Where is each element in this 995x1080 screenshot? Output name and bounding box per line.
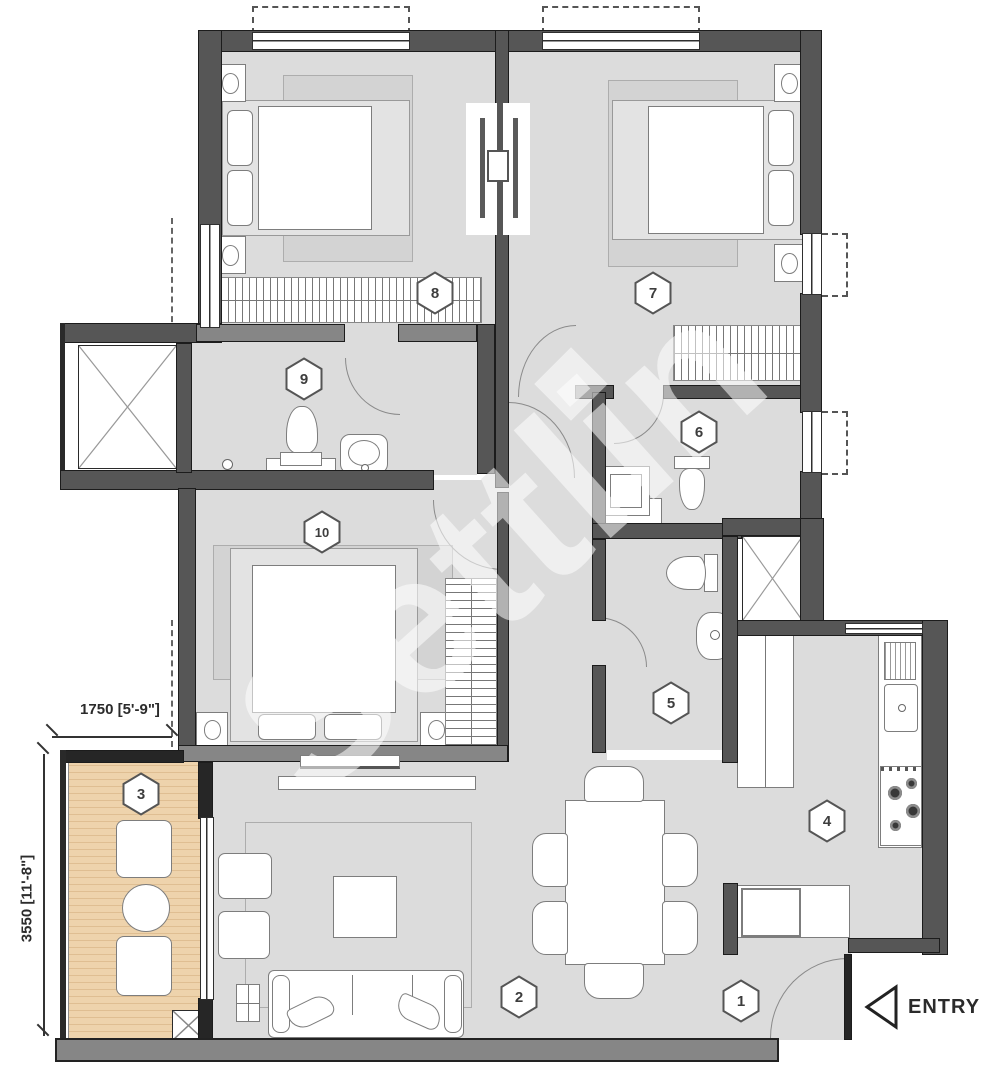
- refrigerator: [741, 888, 801, 937]
- room-badge-8: 8: [416, 271, 454, 315]
- sofa-armrest: [444, 975, 462, 1033]
- wall: [800, 30, 822, 235]
- dining-chair: [532, 833, 568, 887]
- utility-shaft: [78, 345, 177, 469]
- room-badge-2: 2: [500, 975, 538, 1019]
- dimension-tick: [46, 724, 59, 737]
- stove-burner: [890, 820, 901, 831]
- dining-chair: [662, 833, 698, 887]
- wardrobe: [673, 325, 803, 381]
- wall: [800, 518, 824, 626]
- wall: [922, 620, 948, 955]
- entry-door-leaf: [844, 954, 852, 1040]
- wardrobe: [445, 578, 497, 746]
- dining-chair: [584, 766, 644, 802]
- stove-burner: [906, 804, 920, 818]
- bed-mattress: [648, 106, 764, 234]
- entry-label: ENTRY: [908, 996, 980, 1019]
- dining-chair: [584, 963, 644, 999]
- armchair: [218, 911, 270, 959]
- wall: [663, 385, 807, 399]
- bed-pillow: [227, 170, 253, 226]
- stove-burner: [888, 786, 902, 800]
- balcony-chair: [116, 936, 172, 996]
- stove-burner: [906, 778, 917, 789]
- bed-pillow: [768, 110, 794, 166]
- wall: [60, 470, 434, 490]
- wall: [848, 938, 940, 953]
- washbasin-bowl: [348, 440, 380, 466]
- dimension-width: 1750 [5'-9"]: [55, 701, 185, 718]
- wall: [398, 324, 477, 342]
- wall: [60, 323, 65, 490]
- balcony-chair: [116, 820, 172, 878]
- wall: [800, 293, 822, 413]
- kitchen-cabinet: [737, 633, 794, 788]
- faucet: [898, 704, 906, 712]
- window: [252, 32, 410, 50]
- washbasin-bowl: [610, 474, 642, 508]
- floor-plan: Settlin: [0, 0, 995, 1080]
- entry-arrow-icon: [864, 984, 898, 1030]
- wall: [198, 998, 213, 1040]
- bed-pillow: [324, 714, 382, 740]
- nightstand: [196, 712, 228, 748]
- niche-jamb: [513, 118, 518, 218]
- bed-pillow: [258, 714, 316, 740]
- armchair: [218, 853, 272, 899]
- utility-shaft: [742, 536, 803, 621]
- room-badge-1: 1: [722, 979, 760, 1023]
- dining-chair: [662, 901, 698, 955]
- balcony-table: [122, 884, 170, 932]
- toilet: [286, 406, 318, 454]
- wall: [198, 762, 213, 819]
- wall: [55, 1038, 779, 1062]
- dimension-tick: [37, 742, 50, 755]
- window: [802, 411, 822, 473]
- bed-pillow: [768, 170, 794, 226]
- dining-table: [565, 800, 665, 965]
- wall: [592, 539, 606, 621]
- dining-chair: [532, 901, 568, 955]
- wall: [176, 343, 192, 473]
- window: [542, 32, 700, 50]
- wall: [495, 30, 509, 105]
- room-badge-3: 3: [122, 772, 160, 816]
- room-badge-4: 4: [808, 799, 846, 843]
- wall: [495, 233, 509, 488]
- wall: [497, 492, 509, 762]
- sofa-cushion-line: [352, 975, 353, 1015]
- dimension-height: 3550 [11'-8"]: [19, 804, 36, 994]
- coffee-table: [333, 876, 397, 938]
- room-badge-10: 10: [303, 510, 341, 554]
- bed-mattress: [252, 565, 396, 713]
- floor-drain: [222, 459, 233, 470]
- wall: [477, 324, 495, 474]
- window: [845, 623, 923, 634]
- sliding-door: [200, 817, 214, 1000]
- sofa-armrest: [272, 975, 290, 1033]
- floor-lamp: [236, 984, 260, 1022]
- bed-mattress: [258, 106, 372, 230]
- reference-line: [171, 218, 173, 332]
- tv-console: [278, 776, 476, 790]
- faucet: [710, 630, 720, 640]
- wall: [592, 392, 606, 525]
- toilet-tank: [704, 554, 718, 592]
- toilet: [679, 468, 705, 510]
- wall: [592, 523, 742, 539]
- dimension-line: [43, 754, 45, 1036]
- projection-outline: [822, 233, 848, 297]
- room-badge-7: 7: [634, 271, 672, 315]
- room-badge-6: 6: [680, 410, 718, 454]
- window: [200, 224, 220, 328]
- projection-outline: [822, 411, 848, 475]
- room-badge-5: 5: [652, 681, 690, 725]
- dimension-line: [52, 736, 172, 738]
- nightstand: [774, 244, 804, 282]
- sink-drainboard: [884, 642, 916, 680]
- room-9-floor: [190, 335, 477, 475]
- bed-pillow: [227, 110, 253, 166]
- window: [802, 233, 822, 295]
- toilet: [666, 556, 706, 590]
- tv-console: [300, 755, 400, 769]
- wall: [60, 750, 66, 1042]
- wall: [723, 883, 738, 955]
- niche-jamb: [480, 118, 485, 218]
- niche-box: [487, 150, 509, 182]
- wall: [800, 471, 822, 522]
- toilet-tank: [280, 452, 322, 466]
- wall: [592, 665, 606, 753]
- wall: [60, 750, 184, 763]
- room-badge-9: 9: [285, 357, 323, 401]
- wall: [722, 536, 738, 763]
